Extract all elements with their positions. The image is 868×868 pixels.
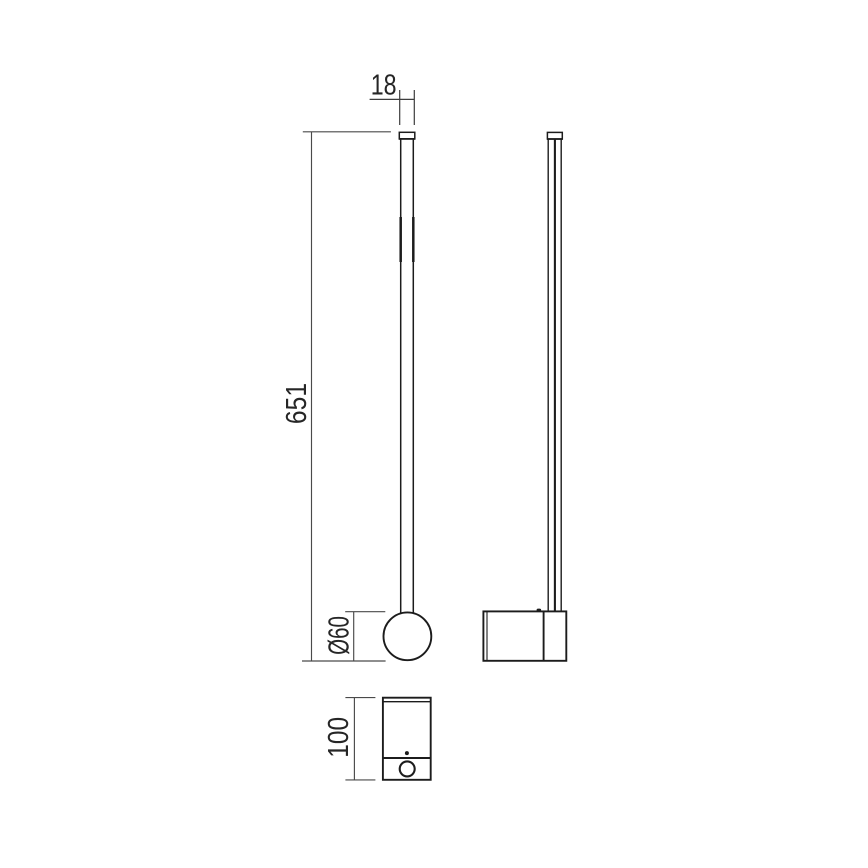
svg-text:651: 651 bbox=[280, 383, 312, 424]
svg-text:18: 18 bbox=[371, 68, 397, 101]
svg-text:Ø60: Ø60 bbox=[324, 616, 355, 655]
svg-text:100: 100 bbox=[322, 717, 354, 758]
